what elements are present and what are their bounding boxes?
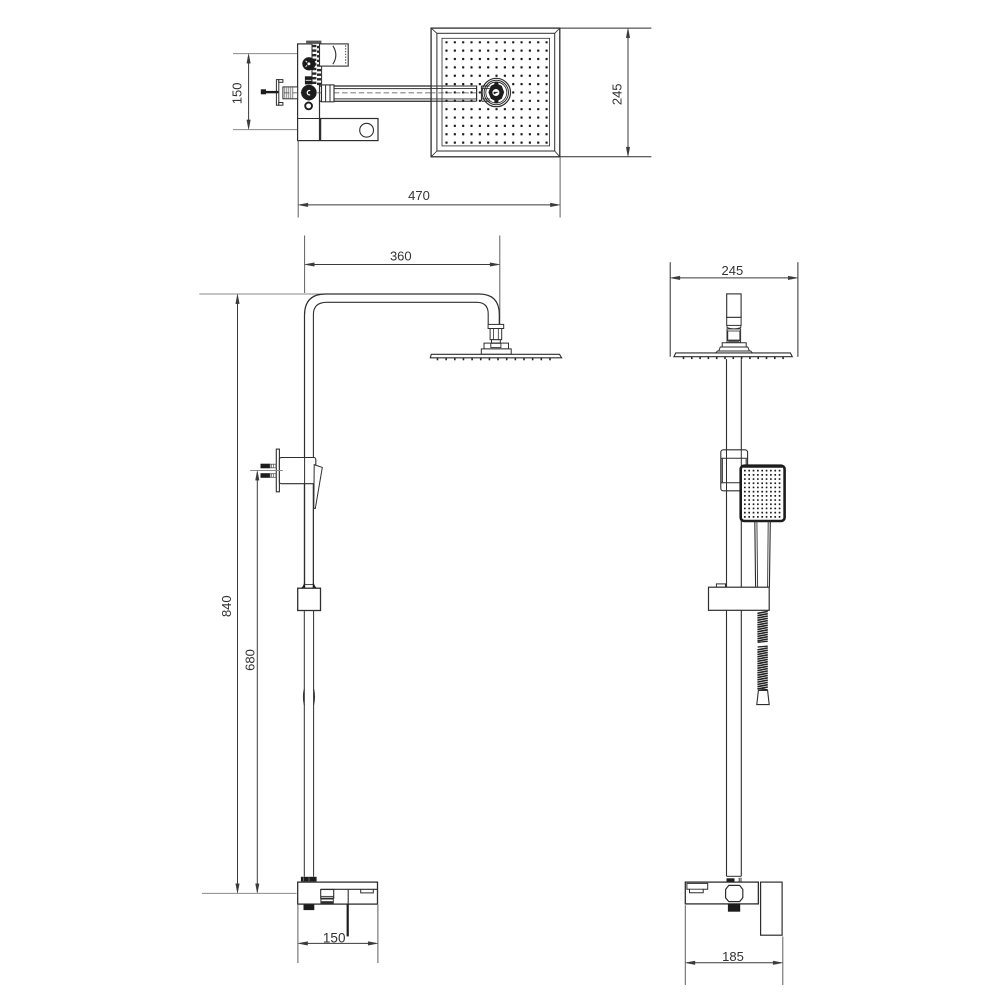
svg-text:840: 840 (219, 595, 234, 617)
svg-text:470: 470 (408, 188, 430, 203)
svg-text:150: 150 (323, 931, 346, 946)
svg-text:150: 150 (230, 83, 245, 105)
svg-text:360: 360 (390, 249, 412, 264)
svg-text:185: 185 (722, 949, 744, 964)
svg-text:680: 680 (243, 649, 258, 671)
svg-text:245: 245 (722, 263, 744, 278)
svg-text:245: 245 (609, 83, 624, 105)
